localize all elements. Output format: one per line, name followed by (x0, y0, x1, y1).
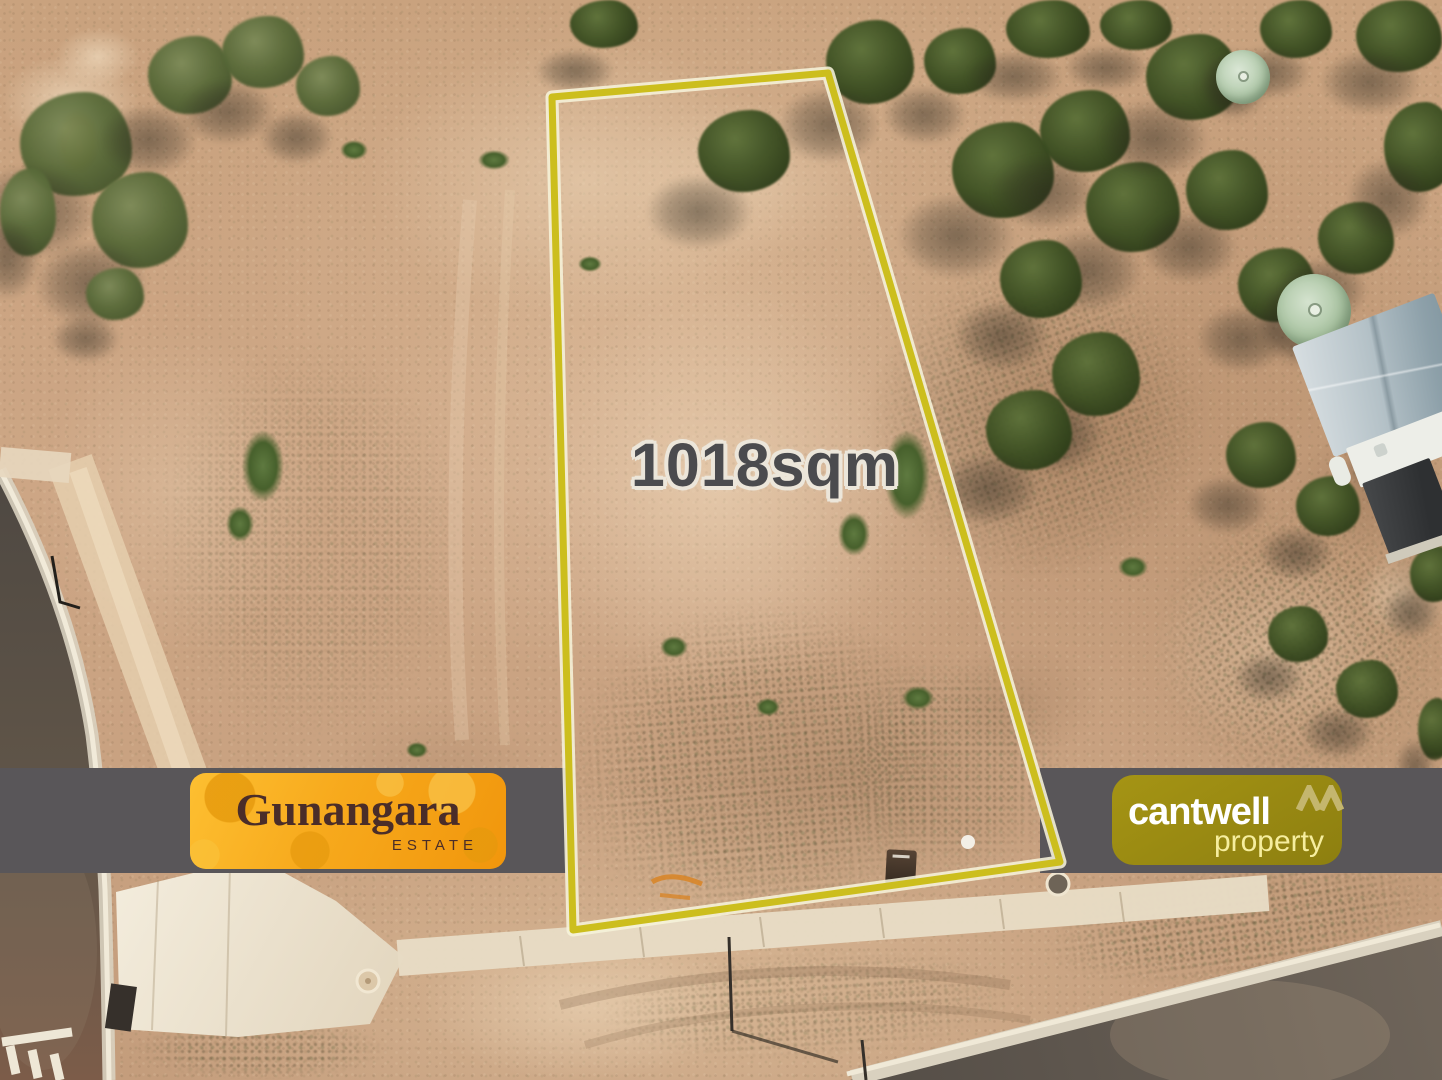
lot-boundary-line (552, 73, 1060, 930)
lot-area-label: 1018sqm (598, 430, 932, 500)
aerial-listing-photo: Gunangara ESTATE cantwell property 1018s… (0, 0, 1442, 1080)
lot-boundary-halo (552, 73, 1060, 930)
lot-boundary (0, 0, 1442, 1080)
